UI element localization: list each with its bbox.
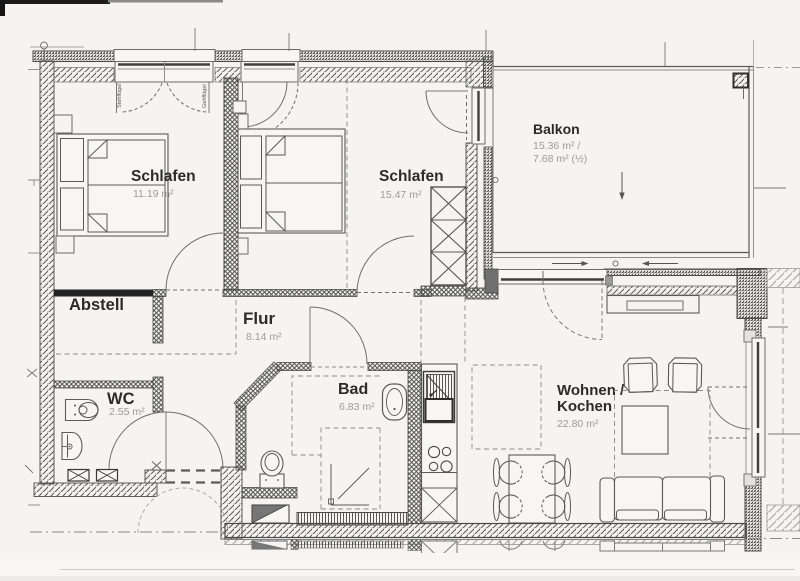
svg-text:15.36 m² /: 15.36 m² / [533, 140, 580, 152]
svg-text:Kochen: Kochen [557, 398, 612, 415]
svg-text:Schlafen: Schlafen [131, 168, 196, 185]
svg-text:Balkon: Balkon [533, 121, 580, 137]
svg-text:7.68 m² (½): 7.68 m² (½) [533, 153, 587, 165]
svg-text:Flur: Flur [243, 309, 275, 328]
svg-text:Abstell: Abstell [69, 296, 124, 314]
svg-text:Gehflügel: Gehflügel [202, 84, 208, 108]
svg-text:Stehflügel: Stehflügel [117, 84, 123, 108]
svg-text:6.83 m²: 6.83 m² [339, 401, 375, 413]
svg-text:11.19 m²: 11.19 m² [133, 188, 174, 200]
svg-text:22.80 m²: 22.80 m² [557, 418, 599, 430]
svg-text:2.55 m²: 2.55 m² [109, 406, 145, 418]
svg-text:8.14 m²: 8.14 m² [246, 331, 282, 343]
svg-text:Bad: Bad [338, 381, 368, 398]
svg-text:15.47 m²: 15.47 m² [380, 189, 422, 201]
svg-text:Schlafen: Schlafen [379, 168, 444, 185]
